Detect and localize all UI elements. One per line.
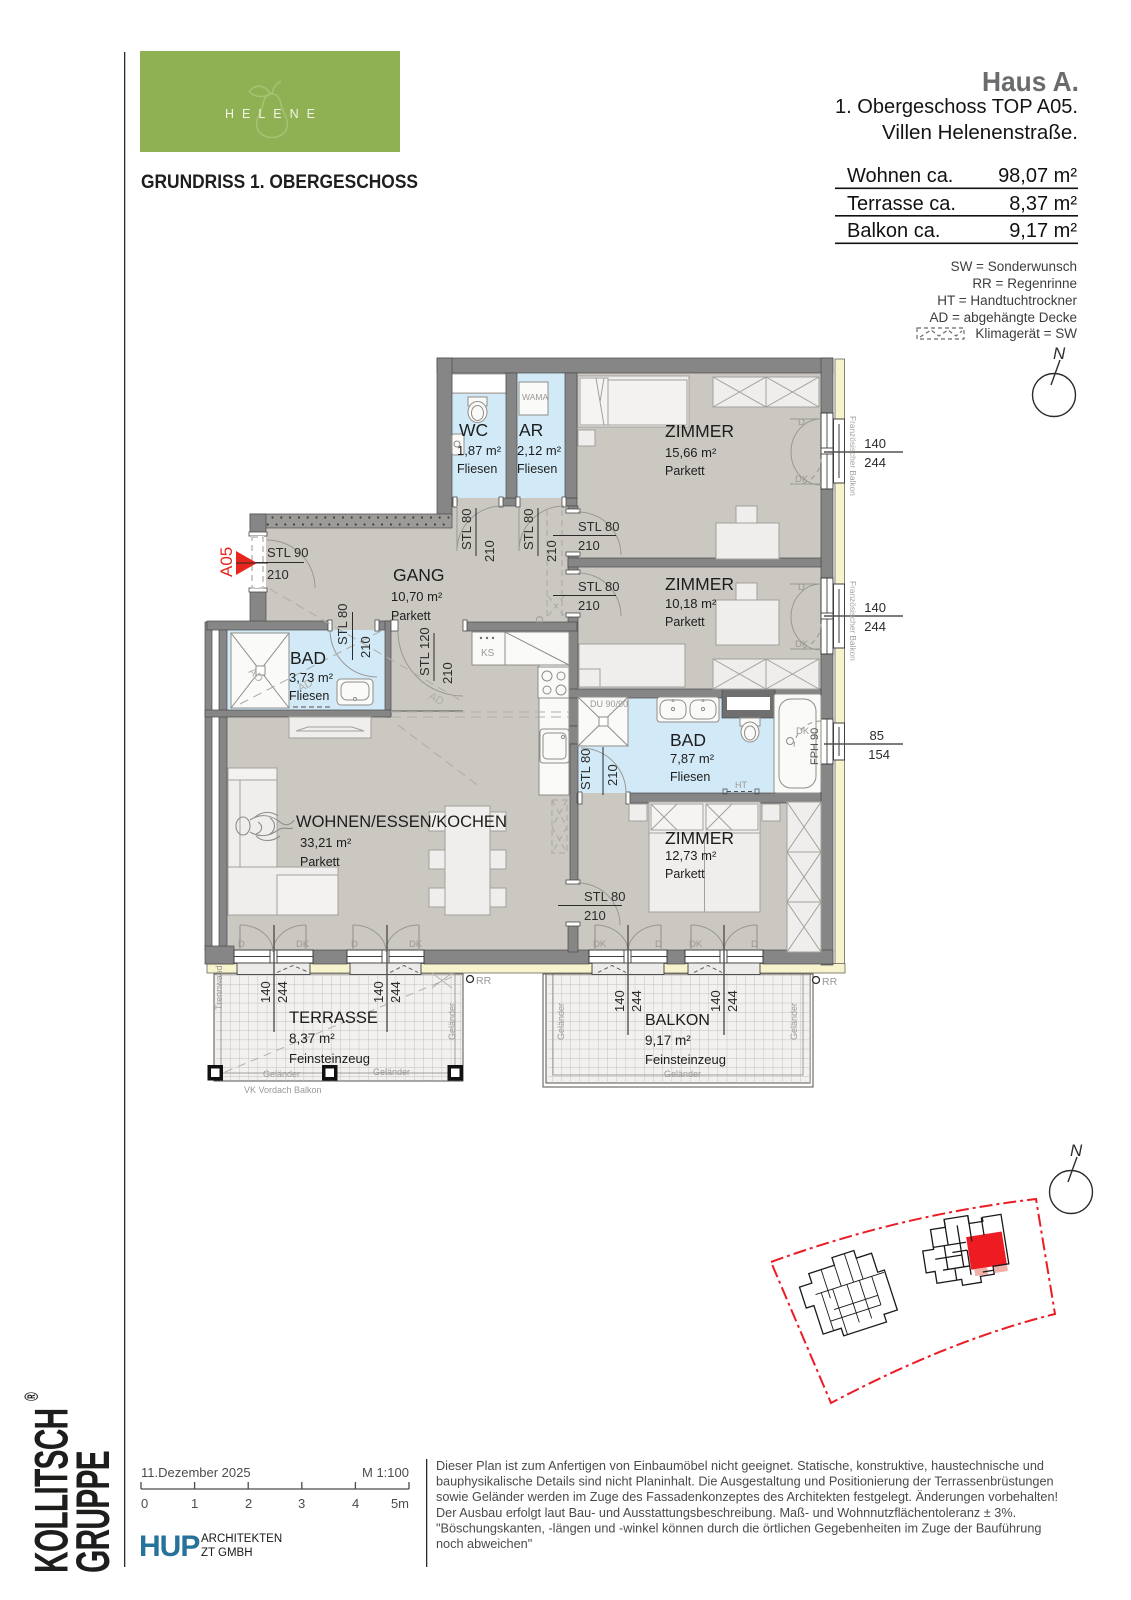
svg-text:HT = Handtuchtrockner: HT = Handtuchtrockner xyxy=(937,293,1077,308)
svg-text:STL 80: STL 80 xyxy=(335,604,350,645)
svg-text:KS: KS xyxy=(481,648,495,659)
svg-text:Parkett: Parkett xyxy=(391,609,431,623)
svg-text:ZIMMER: ZIMMER xyxy=(665,421,734,441)
svg-text:1: 1 xyxy=(191,1496,198,1511)
svg-text:244: 244 xyxy=(629,990,644,1012)
svg-text:ZIMMER: ZIMMER xyxy=(665,574,734,594)
svg-text:Fliesen: Fliesen xyxy=(670,770,710,784)
svg-text:Feinsteinzeug: Feinsteinzeug xyxy=(645,1052,726,1067)
svg-text:noch abweichen": noch abweichen" xyxy=(436,1537,532,1551)
svg-text:D: D xyxy=(351,939,358,950)
svg-text:7,87 m²: 7,87 m² xyxy=(670,751,715,766)
svg-text:10,18 m²: 10,18 m² xyxy=(665,596,717,611)
svg-text:GANG: GANG xyxy=(393,565,445,585)
svg-text:A05: A05 xyxy=(217,547,236,577)
svg-text:DK: DK xyxy=(593,939,607,950)
svg-text:BAD: BAD xyxy=(290,648,326,668)
svg-text:DK: DK xyxy=(795,639,809,650)
svg-text:210: 210 xyxy=(544,540,559,562)
svg-text:140: 140 xyxy=(612,990,627,1012)
svg-text:RR: RR xyxy=(476,975,492,987)
svg-text:Fliesen: Fliesen xyxy=(457,462,497,476)
svg-text:GRUNDRISS 1. OBERGESCHOSS: GRUNDRISS 1. OBERGESCHOSS xyxy=(141,171,418,193)
svg-text:ZIMMER: ZIMMER xyxy=(665,828,734,848)
svg-text:STL 80: STL 80 xyxy=(459,509,474,550)
svg-text:4: 4 xyxy=(352,1496,359,1511)
svg-text:244: 244 xyxy=(725,990,740,1012)
svg-text:Klimagerät = SW: Klimagerät = SW xyxy=(975,326,1077,341)
svg-text:15,66 m²: 15,66 m² xyxy=(665,445,717,460)
svg-text:HUP: HUP xyxy=(139,1530,199,1563)
svg-text:sowie Geländer werden im Zuge: sowie Geländer werden im Zuge des Fassad… xyxy=(436,1490,1058,1504)
svg-text:Geländer: Geländer xyxy=(447,1003,457,1040)
svg-text:M 1:100: M 1:100 xyxy=(362,1465,409,1480)
svg-text:DK: DK xyxy=(689,939,703,950)
svg-text:STL 90: STL 90 xyxy=(267,545,308,560)
svg-text:3,73 m²: 3,73 m² xyxy=(289,670,334,685)
svg-text:GRUPPE: GRUPPE xyxy=(67,1451,120,1573)
svg-text:210: 210 xyxy=(440,662,455,684)
svg-text:210: 210 xyxy=(267,567,289,582)
svg-text:85: 85 xyxy=(870,728,884,743)
svg-text:140: 140 xyxy=(864,600,886,615)
svg-text:Dieser Plan ist zum Anfertigen: Dieser Plan ist zum Anfertigen von Einba… xyxy=(436,1459,1044,1473)
svg-text:244: 244 xyxy=(864,619,886,634)
svg-text:STL 80: STL 80 xyxy=(521,509,536,550)
svg-text:5m: 5m xyxy=(391,1496,409,1511)
svg-text:Parkett: Parkett xyxy=(665,615,705,629)
svg-text:BAD: BAD xyxy=(670,730,706,750)
svg-text:RR: RR xyxy=(822,976,838,988)
svg-text:1. Obergeschoss TOP A05.: 1. Obergeschoss TOP A05. xyxy=(835,95,1078,118)
svg-text:210: 210 xyxy=(482,540,497,562)
svg-text:FPH 90: FPH 90 xyxy=(809,728,821,765)
svg-text:2,12 m²: 2,12 m² xyxy=(517,443,562,458)
svg-text:Trennwand: Trennwand xyxy=(214,965,224,1010)
svg-text:Balkon ca.: Balkon ca. xyxy=(847,220,940,242)
svg-text:DK: DK xyxy=(296,939,310,950)
svg-text:Geländer: Geländer xyxy=(789,1003,799,1040)
svg-text:RR = Regenrinne: RR = Regenrinne xyxy=(972,276,1077,291)
svg-text:210: 210 xyxy=(578,598,600,613)
svg-text:Feinsteinzeug: Feinsteinzeug xyxy=(289,1051,370,1066)
svg-text:154: 154 xyxy=(868,747,890,762)
svg-text:Der Ausbau erfolgt laut Bau- u: Der Ausbau erfolgt laut Bau- und Ausstat… xyxy=(436,1506,1016,1520)
svg-text:HT: HT xyxy=(735,780,747,790)
svg-text:Geländer: Geländer xyxy=(664,1069,701,1079)
svg-text:N: N xyxy=(1070,1141,1083,1160)
svg-text:AR: AR xyxy=(519,420,543,440)
svg-text:1,87 m²: 1,87 m² xyxy=(457,443,502,458)
svg-text:11.Dezember 2025: 11.Dezember 2025 xyxy=(141,1465,251,1480)
svg-text:10,70 m²: 10,70 m² xyxy=(391,589,443,604)
svg-text:WAMA: WAMA xyxy=(522,392,548,402)
svg-text:Französischer Balkon: Französischer Balkon xyxy=(848,581,858,661)
svg-text:D: D xyxy=(798,417,805,428)
svg-text:Haus A.: Haus A. xyxy=(982,66,1079,97)
svg-text:HELENE: HELENE xyxy=(225,107,323,121)
svg-text:Villen Helenenstraße.: Villen Helenenstraße. xyxy=(882,121,1078,144)
svg-text:D: D xyxy=(238,939,245,950)
svg-text:210: 210 xyxy=(578,538,600,553)
svg-text:8,37 m²: 8,37 m² xyxy=(1009,193,1077,215)
svg-text:12,73 m²: 12,73 m² xyxy=(665,848,717,863)
svg-text:DK: DK xyxy=(795,474,809,485)
svg-text:D: D xyxy=(535,616,546,623)
svg-text:244: 244 xyxy=(388,981,403,1003)
svg-text:ARCHITEKTEN: ARCHITEKTEN xyxy=(201,1533,282,1545)
svg-text:SW = Sonderwunsch: SW = Sonderwunsch xyxy=(951,259,1077,274)
svg-text:bauphysikalische Details sind: bauphysikalische Details sind nicht Plan… xyxy=(436,1475,1054,1489)
svg-text:140: 140 xyxy=(708,990,723,1012)
svg-text:STL 80: STL 80 xyxy=(584,889,625,904)
svg-text:N: N xyxy=(1053,344,1066,363)
svg-text:®: ® xyxy=(23,1392,43,1401)
svg-text:2: 2 xyxy=(245,1496,252,1511)
svg-text:D: D xyxy=(655,939,662,950)
svg-text:TERRASSE: TERRASSE xyxy=(289,1009,378,1027)
svg-text:3: 3 xyxy=(298,1496,305,1511)
svg-text:VK Vordach Balkon: VK Vordach Balkon xyxy=(244,1085,322,1095)
svg-text:BALKON: BALKON xyxy=(645,1012,710,1029)
svg-text:8,37 m²: 8,37 m² xyxy=(289,1031,335,1046)
svg-text:STL 80: STL 80 xyxy=(578,749,593,790)
svg-text:WC: WC xyxy=(459,420,488,440)
svg-text:Parkett: Parkett xyxy=(665,464,705,478)
svg-text:STL 80: STL 80 xyxy=(578,579,619,594)
svg-text:140: 140 xyxy=(371,981,386,1003)
svg-text:0: 0 xyxy=(141,1496,148,1511)
svg-text:244: 244 xyxy=(864,455,886,470)
svg-text:D: D xyxy=(751,939,758,950)
svg-text:9,17 m²: 9,17 m² xyxy=(1009,220,1077,242)
svg-text:Parkett: Parkett xyxy=(300,855,340,869)
svg-text:DU 90/90: DU 90/90 xyxy=(590,699,628,709)
svg-text:Terrasse ca.: Terrasse ca. xyxy=(847,193,956,215)
svg-text:210: 210 xyxy=(605,764,620,786)
svg-text:Parkett: Parkett xyxy=(665,867,705,881)
svg-text:9,17 m²: 9,17 m² xyxy=(645,1033,691,1048)
svg-text:D: D xyxy=(798,582,805,593)
svg-text:Fliesen: Fliesen xyxy=(289,689,329,703)
svg-text:244: 244 xyxy=(275,981,290,1003)
svg-text:STL 120: STL 120 xyxy=(417,627,432,676)
svg-text:WOHNEN/ESSEN/KOCHEN: WOHNEN/ESSEN/KOCHEN xyxy=(296,813,507,831)
svg-text:Französischer Balkon: Französischer Balkon xyxy=(848,416,858,496)
svg-text:Geländer: Geländer xyxy=(263,1069,300,1079)
svg-text:Fliesen: Fliesen xyxy=(517,462,557,476)
svg-text:Wohnen ca.: Wohnen ca. xyxy=(847,165,953,187)
svg-text:140: 140 xyxy=(864,436,886,451)
svg-text:Geländer: Geländer xyxy=(556,1003,566,1040)
svg-text:Geländer: Geländer xyxy=(373,1067,410,1077)
svg-text:ZT GMBH: ZT GMBH xyxy=(201,1547,253,1559)
svg-text:210: 210 xyxy=(358,636,373,658)
svg-text:DK: DK xyxy=(409,939,423,950)
svg-text:140: 140 xyxy=(258,981,273,1003)
svg-text:AD = abgehängte Decke: AD = abgehängte Decke xyxy=(930,310,1077,325)
svg-text:"Böschungskanten, -längen und: "Böschungskanten, -längen und -winkel kö… xyxy=(436,1521,1041,1535)
svg-text:33,21 m²: 33,21 m² xyxy=(300,835,352,850)
svg-text:98,07 m²: 98,07 m² xyxy=(998,165,1077,187)
svg-text:210: 210 xyxy=(584,908,606,923)
svg-text:STL 80: STL 80 xyxy=(578,519,619,534)
